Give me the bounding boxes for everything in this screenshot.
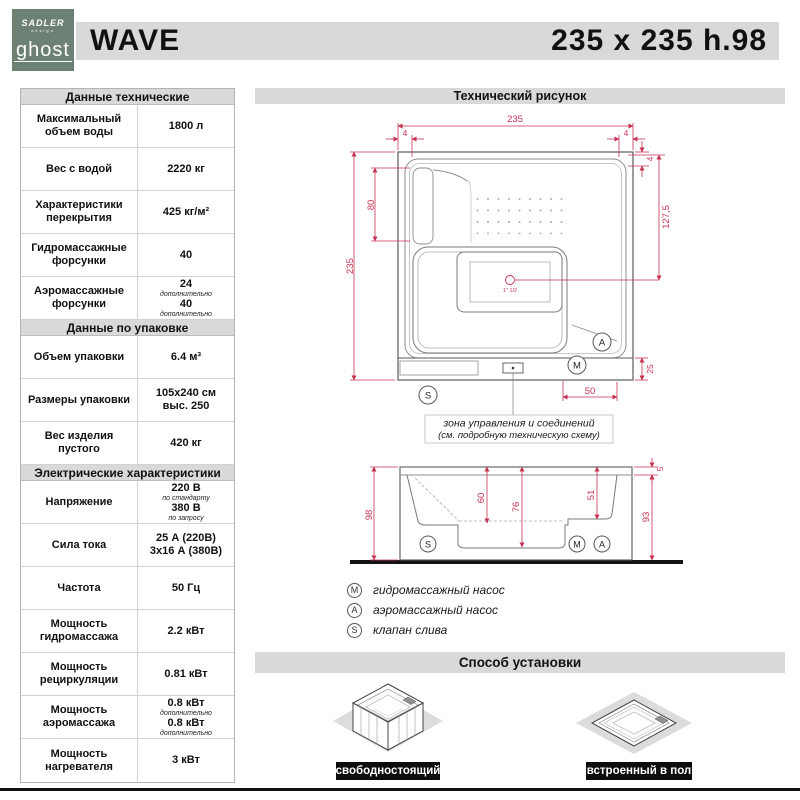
table-row: Размеры упаковки 105x240 см выс. 250 <box>21 379 234 422</box>
dim-51: 51 <box>586 490 597 501</box>
dim-98: 98 <box>364 510 375 521</box>
table-row: Вес изделия пустого 420 кг <box>21 422 234 465</box>
row-label: Размеры упаковки <box>21 379 138 421</box>
row-value: 1800 л <box>169 120 204 133</box>
drain-size-label: 1" 1/2 <box>503 288 517 294</box>
row-value: 24 <box>180 278 192 291</box>
dim-5: 5 <box>655 466 665 471</box>
table-row: Напряжение 220 В по стандарту 380 В по з… <box>21 481 234 524</box>
row-value: 40 <box>180 249 192 262</box>
marker-m-side: M <box>573 540 581 550</box>
row-value2: 40 <box>180 298 192 311</box>
row-value: 3 кВт <box>172 754 200 767</box>
bottom-rule <box>0 788 800 791</box>
pump-m-icon: M <box>347 583 362 598</box>
brand-logo: SADLER design ghost <box>12 9 74 71</box>
table-row: Сила тока 25 А (220В) 3x16 А (380В) <box>21 524 234 567</box>
drawing-panel-title: Технический рисунок <box>255 88 785 104</box>
row-label: Мощность гидромассажа <box>21 610 138 652</box>
table-row: Аэромассажные форсунки 24 дополнительно … <box>21 277 234 320</box>
row-value: 2220 кг <box>167 163 205 176</box>
dim-corner-right: 4 <box>624 128 629 138</box>
row-label: Напряжение <box>21 481 138 523</box>
row-value: 105x240 см <box>156 387 216 400</box>
dim-60: 60 <box>476 493 487 504</box>
dim-76: 76 <box>511 502 522 513</box>
row-note2: дополнительно <box>160 730 212 737</box>
legend-label: гидромассажный насос <box>373 583 505 597</box>
table-row: Мощность рециркуляции 0.81 кВт <box>21 653 234 696</box>
row-value: 0.81 кВт <box>164 668 207 681</box>
dim-zone-50: 50 <box>585 386 596 397</box>
table-row: Частота 50 Гц <box>21 567 234 610</box>
row-label: Мощность рециркуляции <box>21 653 138 695</box>
spec-table: Данные технические Максимальный объем во… <box>20 88 235 783</box>
row-value2: выс. 250 <box>163 400 210 413</box>
dim-top-width: 235 <box>507 114 523 125</box>
row-label: Частота <box>21 567 138 609</box>
row-value: 25 А (220В) <box>156 532 216 545</box>
pump-a-icon: A <box>347 603 362 618</box>
spec-sheet-page: { "header": { "logo": {"line1": "SADLER"… <box>0 0 800 800</box>
row-label: Объем упаковки <box>21 336 138 378</box>
dim-seat-80: 80 <box>366 200 377 211</box>
marker-a-top: A <box>599 338 606 349</box>
dim-93: 93 <box>641 512 652 523</box>
marker-s-side: S <box>425 540 431 550</box>
table-row: Гидромассажные форсунки 40 <box>21 234 234 277</box>
side-view-drawing: S M A 98 60 76 51 5 93 <box>255 455 785 585</box>
row-label: Гидромассажные форсунки <box>21 234 138 276</box>
title-bar: WAVE 235 x 235 h.98 <box>76 22 779 60</box>
row-value2: 3x16 А (380В) <box>150 545 222 558</box>
freestanding-install-icon <box>330 680 446 760</box>
marker-m-top: M <box>573 361 581 372</box>
row-label: Вес с водой <box>21 148 138 190</box>
install-option-built-in: встроенный в пол <box>586 762 692 780</box>
table-row: Вес с водой 2220 кг <box>21 148 234 191</box>
row-value2: 0.8 кВт <box>167 717 204 730</box>
zone-note-line1: зона управления и соединений <box>442 418 594 430</box>
floor-line <box>350 560 683 564</box>
drawing-legend: M гидромассажный насос A аэромассажный н… <box>255 580 785 640</box>
table-row: Максимальный объем воды 1800 л <box>21 105 234 148</box>
row-label: Вес изделия пустого <box>21 422 138 464</box>
brand-logo-line1: SADLER <box>21 19 64 28</box>
row-label: Максимальный объем воды <box>21 105 138 147</box>
brand-logo-line2: design <box>31 29 55 33</box>
row-value: 50 Гц <box>172 582 200 595</box>
product-size: 235 x 235 h.98 <box>551 24 767 58</box>
marker-a-side: A <box>599 540 605 550</box>
legend-item-drain: S клапан слива <box>347 620 785 640</box>
dim-left-height: 235 <box>345 258 356 274</box>
legend-item-aero: A аэромассажный насос <box>347 600 785 620</box>
built-in-floor-install-icon <box>572 688 696 758</box>
row-note2: по запросу <box>168 515 203 522</box>
legend-label: аэромассажный насос <box>373 603 498 617</box>
backrest <box>413 168 433 244</box>
dim-corner-side: 4 <box>645 156 655 161</box>
zone-note-line2: (см. подробную техническую схему) <box>438 430 600 441</box>
legend-label: клапан слива <box>373 623 447 637</box>
brand-logo-name: ghost <box>14 40 72 62</box>
row-note: дополнительно <box>160 291 212 298</box>
dim-corner-left: 4 <box>403 128 408 138</box>
apron-panel <box>400 361 478 375</box>
table-row: Мощность нагревателя 3 кВт <box>21 739 234 782</box>
row-value: 220 В <box>171 482 200 495</box>
row-label: Мощность аэромассажа <box>21 696 138 738</box>
product-name: WAVE <box>90 24 180 58</box>
install-option-freestanding: свободностоящий <box>336 762 440 780</box>
air-jets-grid <box>469 190 569 234</box>
valve-s-icon: S <box>347 623 362 638</box>
row-note: дополнительно <box>160 710 212 717</box>
table-row: Мощность аэромассажа 0.8 кВт дополнитель… <box>21 696 234 739</box>
row-value: 0.8 кВт <box>167 697 204 710</box>
row-note: по стандарту <box>162 495 210 502</box>
row-value: 420 кг <box>170 437 202 450</box>
row-label: Характеристики перекрытия <box>21 191 138 233</box>
dim-right-127: 127,5 <box>661 205 672 229</box>
row-label: Сила тока <box>21 524 138 566</box>
row-value: 2.2 кВт <box>167 625 204 638</box>
dim-apron-25: 25 <box>645 364 655 374</box>
table-row: Мощность гидромассажа 2.2 кВт <box>21 610 234 653</box>
marker-s-top: S <box>425 391 431 402</box>
top-view-drawing: 1" 1/2 зона управления и соединений (см.… <box>255 105 785 450</box>
legend-item-hydro: M гидромассажный насос <box>347 580 785 600</box>
table-row: Объем упаковки 6.4 м³ <box>21 336 234 379</box>
row-label: Мощность нагревателя <box>21 739 138 782</box>
row-label: Аэромассажные форсунки <box>21 277 138 319</box>
row-value: 6.4 м³ <box>171 351 201 364</box>
row-value: 425 кг/м² <box>163 206 209 219</box>
section-title-packaging: Данные по упаковке <box>21 320 234 336</box>
table-row: Характеристики перекрытия 425 кг/м² <box>21 191 234 234</box>
row-note2: дополнительно <box>160 311 212 318</box>
row-value2: 380 В <box>171 502 200 515</box>
installation-title: Способ установки <box>255 652 785 673</box>
section-title-electrical: Электрические характеристики <box>21 465 234 481</box>
section-title-technical: Данные технические <box>21 89 234 105</box>
